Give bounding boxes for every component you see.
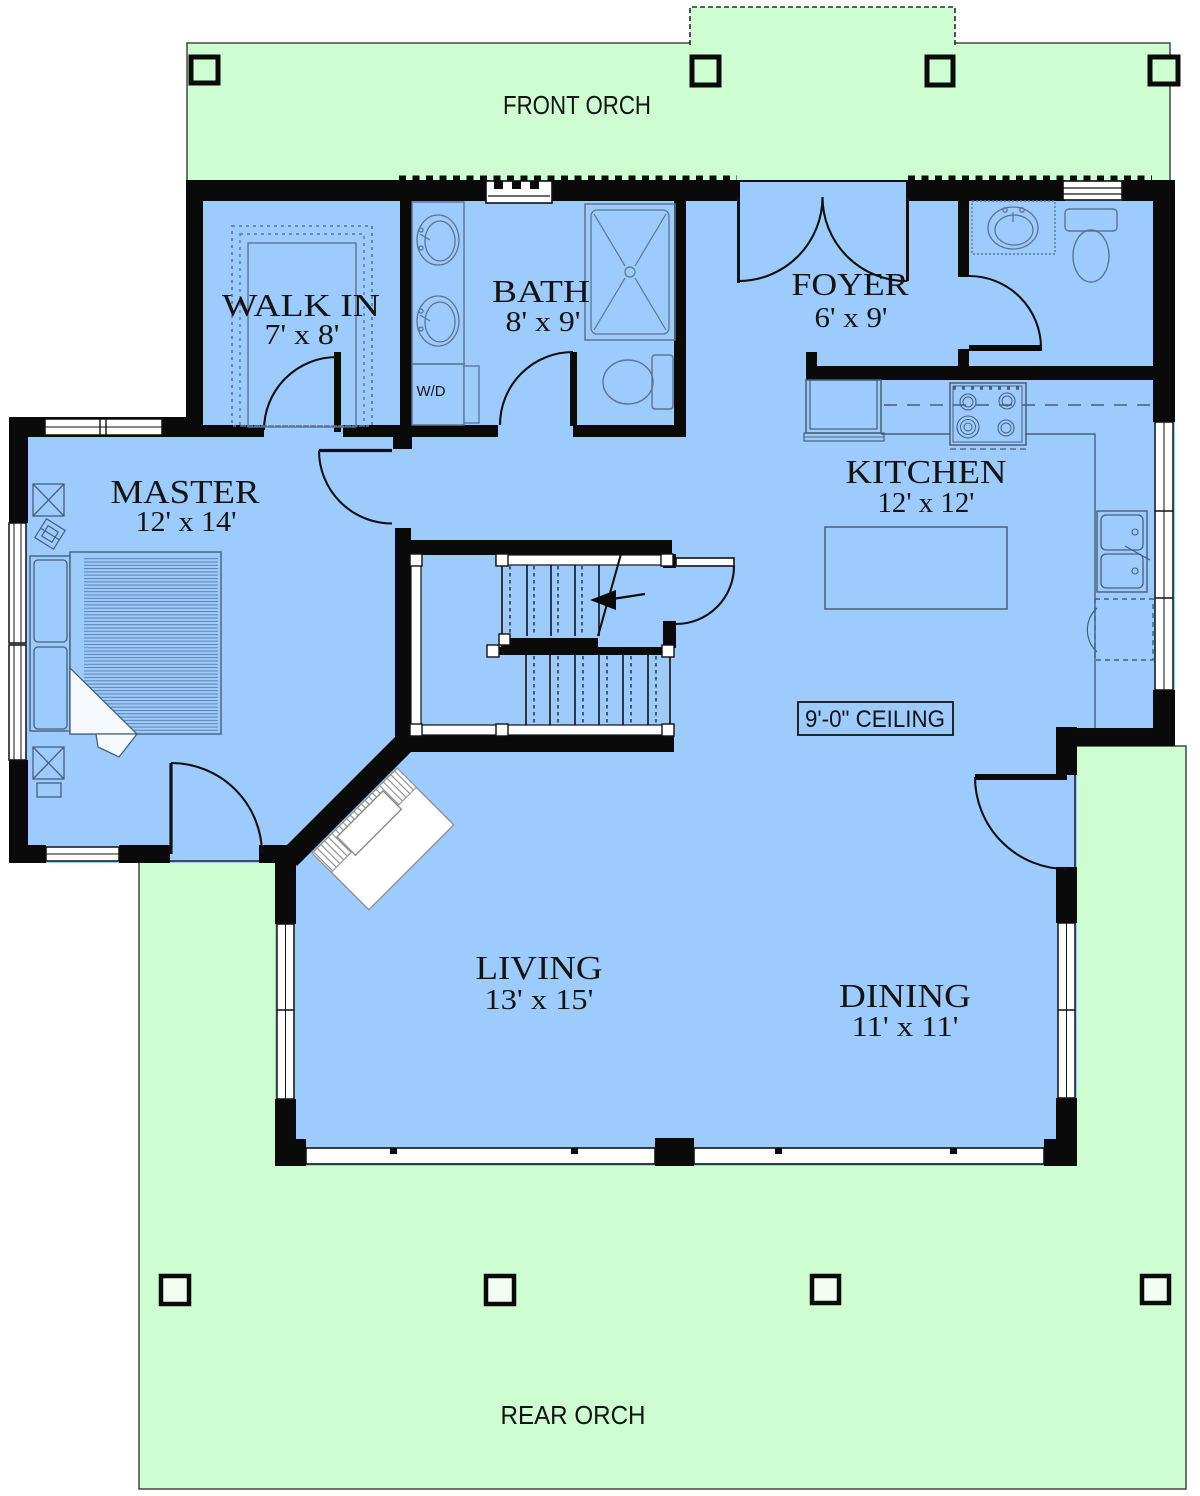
svg-text:DINING: DINING (839, 978, 971, 1015)
svg-text:7' x 8': 7' x 8' (265, 320, 340, 351)
svg-text:LIVING: LIVING (476, 950, 603, 987)
svg-text:13' x 15': 13' x 15' (485, 985, 594, 1016)
svg-text:8' x 9': 8' x 9' (506, 307, 581, 338)
svg-text:KITCHEN: KITCHEN (846, 454, 1007, 491)
svg-text:W/D: W/D (417, 383, 446, 400)
svg-text:FOYER: FOYER (792, 266, 910, 302)
svg-text:12' x 12': 12' x 12' (878, 488, 975, 519)
svg-text:WALK IN: WALK IN (222, 287, 380, 323)
svg-text:BATH: BATH (492, 273, 590, 309)
svg-text:6' x 9': 6' x 9' (815, 303, 888, 334)
svg-text:REAR ORCH: REAR ORCH (501, 1400, 646, 1430)
svg-text:9'-0" CEILING: 9'-0" CEILING (805, 706, 945, 733)
svg-text:11' x 11': 11' x 11' (852, 1012, 959, 1043)
svg-text:12' x 14': 12' x 14' (136, 507, 237, 538)
svg-text:MASTER: MASTER (111, 474, 260, 511)
svg-text:FRONT ORCH: FRONT ORCH (503, 90, 651, 120)
